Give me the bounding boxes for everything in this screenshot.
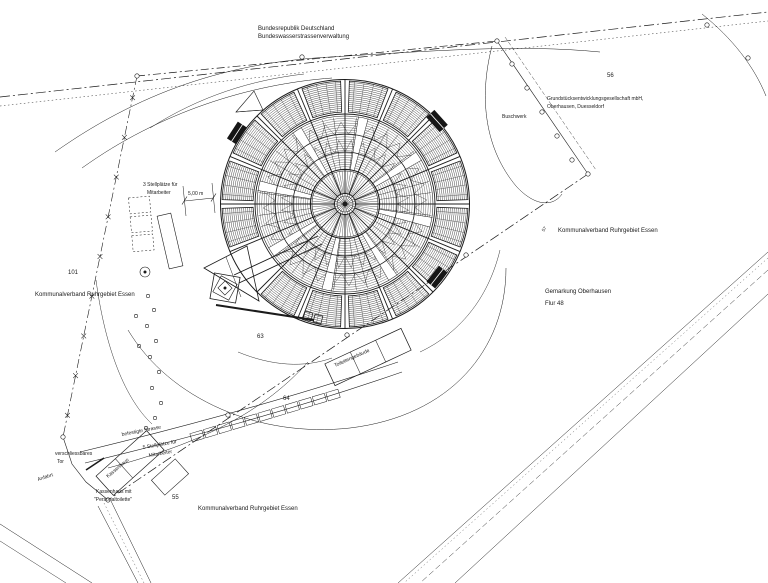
label-parking3-2: Mitarbeiter — [147, 190, 171, 196]
road-band-bottom-right — [398, 252, 768, 583]
label-developer-1: Grundstücksentwicklungsgesellschaft mbH, — [547, 96, 643, 102]
label-district-1: Gemarkung Oberhausen — [545, 289, 611, 295]
ticket-house-building — [96, 431, 164, 496]
gate-symbol — [86, 458, 104, 470]
dimension-5m — [182, 183, 216, 216]
canopy-triangle-north — [236, 91, 263, 112]
label-federal-owner-2: Bundeswasserstrassenverwaltung — [258, 34, 349, 40]
fence-cross-marks — [65, 95, 135, 417]
label-district-2: Flur 48 — [545, 301, 564, 307]
ticket-house-annex — [151, 459, 188, 495]
label-approach: Anfahrt — [37, 472, 55, 483]
tree-symbols — [134, 294, 162, 429]
corner-lines-bottom-left — [0, 501, 151, 583]
staff-parking-3 — [128, 196, 154, 252]
label-parcel-63: 63 — [257, 334, 264, 340]
label-parcel-101: 101 — [68, 270, 79, 276]
site-plan-drawing: Bundesrepublik Deutschland Bundeswassers… — [0, 0, 768, 583]
label-owner-bottom: Kommunalverband Ruhrgebiet Essen — [198, 506, 298, 512]
tree-circle-large — [140, 267, 150, 277]
site-plan: Bundesrepublik Deutschland Bundeswassers… — [0, 0, 768, 583]
label-ticket-house-1: Kassenhaus mit — [96, 489, 132, 495]
label-parcel-55: 55 — [172, 495, 179, 501]
label-owner-left: Kommunalverband Ruhrgebiet Essen — [35, 292, 135, 298]
label-gate-1: verschliessbares — [55, 451, 93, 457]
label-shrubs: Buschwerk — [502, 114, 527, 120]
label-parking5-1: 5 Stellplätze für — [142, 439, 177, 451]
label-developer-2: Oberhausen, Duesseldorf — [547, 104, 605, 110]
label-marker-57: 57 — [541, 225, 548, 232]
label-ticket-house-on-building: Kassenhaus — [105, 457, 130, 480]
label-federal-owner-1: Bundesrepublik Deutschland — [258, 26, 334, 32]
label-parking5-2: Mitarbeiter — [148, 449, 173, 459]
stair-tower-top-left — [227, 122, 247, 145]
label-dimension-5m: 5,00 m — [188, 191, 203, 197]
label-ticket-house-2: "Personaltoilette" — [94, 497, 132, 503]
label-owner-right: Kommunalverband Ruhrgebiet Essen — [558, 228, 658, 234]
toilet-building — [325, 328, 411, 385]
label-paved-road: befestigte Strasse — [121, 424, 162, 438]
label-parcel-64: 64 — [283, 396, 290, 402]
staff-building-west — [157, 213, 183, 269]
canal-boundary-lines — [0, 12, 768, 106]
label-parcel-56: 56 — [607, 73, 614, 79]
label-parking3-1: 3 Stellplätze für — [143, 182, 178, 188]
label-gate-2: Tor — [57, 459, 64, 465]
